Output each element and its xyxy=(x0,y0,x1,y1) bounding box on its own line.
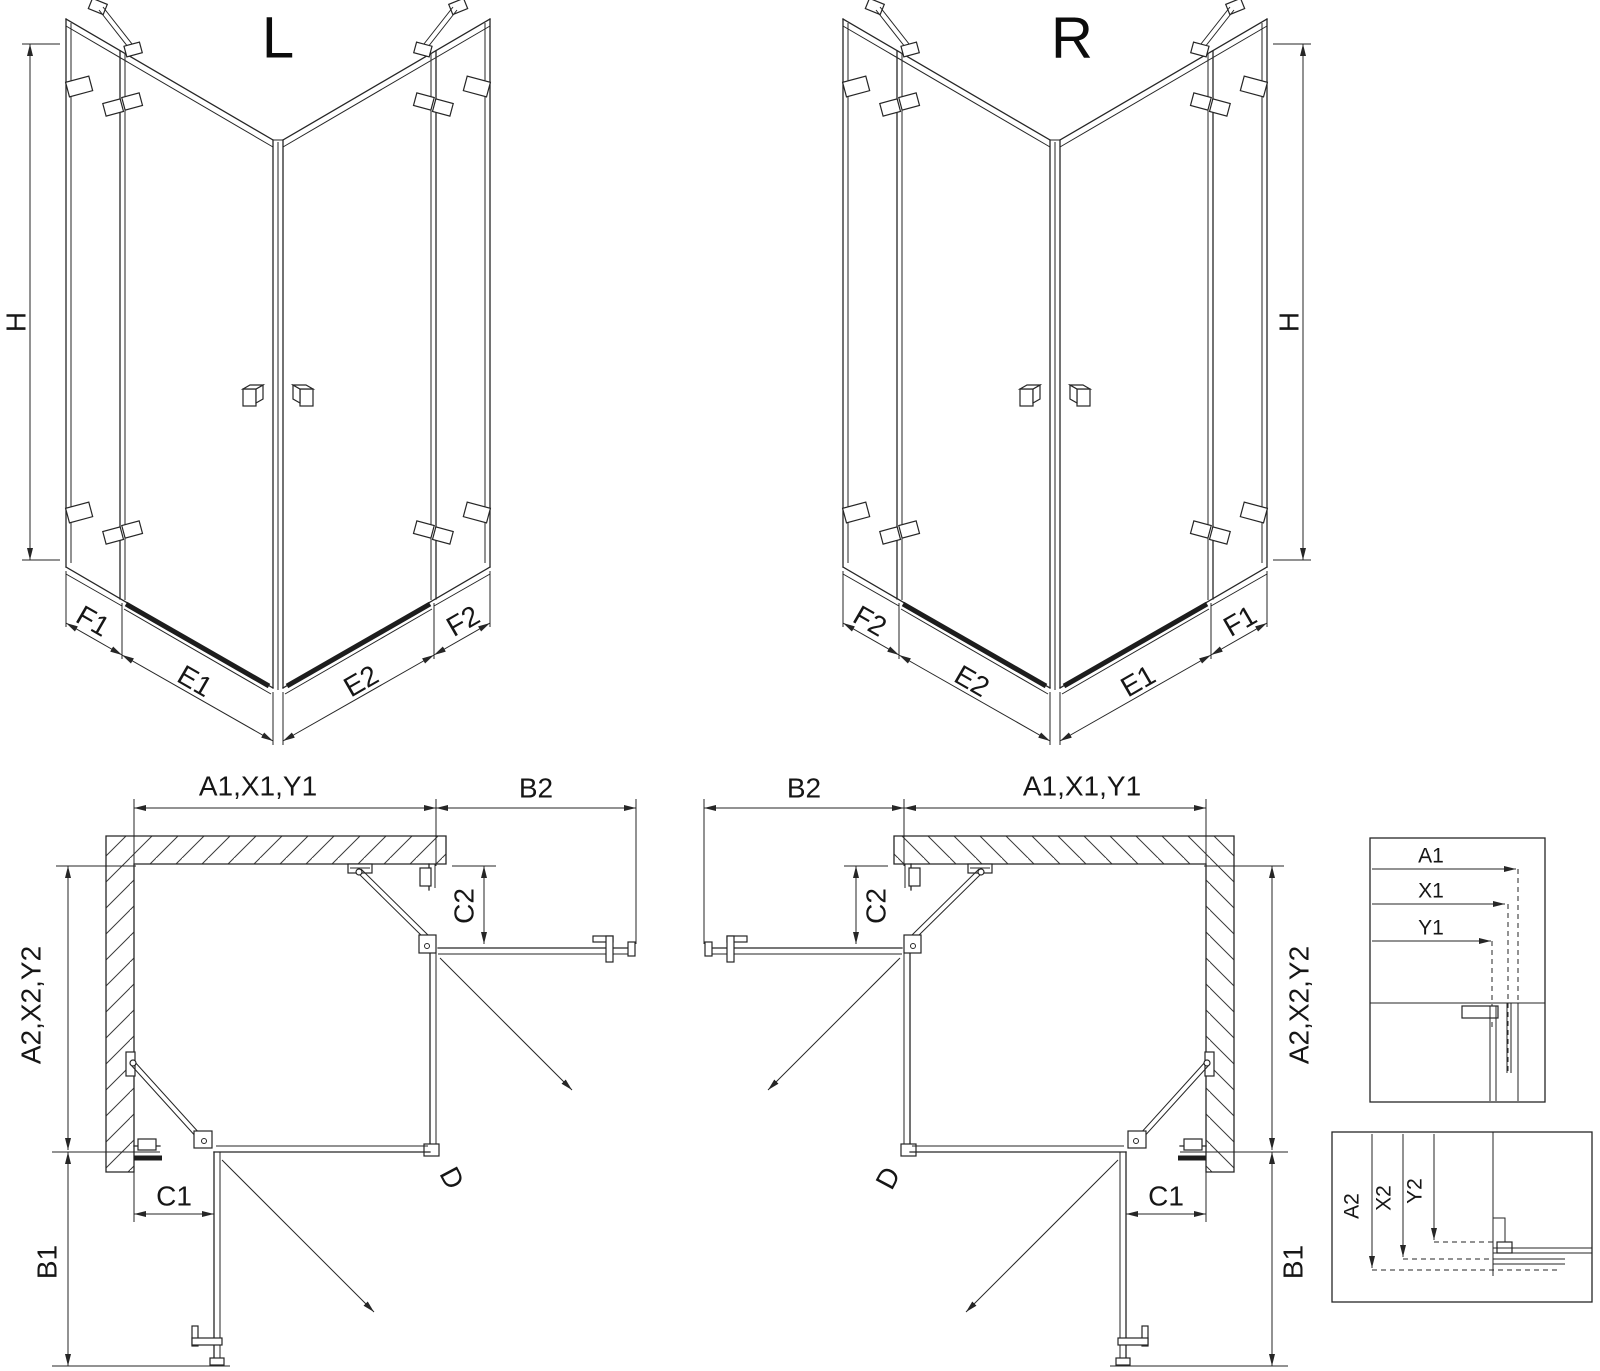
iso-view-right: R H F2 E2 E1 F1 xyxy=(843,0,1311,745)
dimension-label-c1: C1 xyxy=(156,1181,192,1212)
segment-label-e2: E2 xyxy=(338,659,383,703)
plan-view-left-geometry xyxy=(52,799,636,1366)
variant-label-left: L xyxy=(262,6,294,71)
dimension-label-a2x2y2: A2,X2,Y2 xyxy=(1284,946,1315,1064)
detail-label-x2: X2 xyxy=(1373,1185,1396,1211)
dimension-label-a1x1y1: A1,X1,Y1 xyxy=(1023,771,1141,802)
drawing-canvas: L H F1 E1 E2 F2 R H F2 E2 E1 F1 A1,X1,Y1… xyxy=(0,0,1600,1371)
height-dimension-label: H xyxy=(1274,312,1305,332)
detail-label-a1: A1 xyxy=(1418,845,1444,868)
dimension-label-c2: C2 xyxy=(861,888,892,924)
segment-label-f2: F2 xyxy=(441,599,485,642)
plan-view-left: A1,X1,Y1 B2 C2 A2,X2,Y2 C1 B1 D xyxy=(16,771,637,1367)
dimension-label-a1x1y1: A1,X1,Y1 xyxy=(199,771,317,802)
segment-label-f1: F1 xyxy=(71,599,115,642)
dimension-label-b2: B2 xyxy=(787,773,821,804)
detail-label-y1: Y1 xyxy=(1418,917,1444,940)
plan-view-right-geometry xyxy=(704,799,1288,1366)
dimension-label-d: D xyxy=(870,1162,907,1194)
detail-box-depth: A2 X2 Y2 xyxy=(1332,1132,1592,1302)
shower-enclosure-technical-drawing: L H F1 E1 E2 F2 R H F2 E2 E1 F1 A1,X1,Y1… xyxy=(0,0,1600,1371)
dimension-label-a2x2y2: A2,X2,Y2 xyxy=(16,946,47,1064)
dimension-label-b1: B1 xyxy=(1278,1245,1309,1279)
detail-box-width: A1 X1 Y1 xyxy=(1370,838,1545,1102)
segment-label-e1: E1 xyxy=(1115,659,1160,703)
dimension-label-b2: B2 xyxy=(519,773,553,804)
segment-label-e1: E1 xyxy=(172,659,217,703)
dimension-label-c2: C2 xyxy=(449,888,480,924)
height-dimension-label: H xyxy=(1,312,32,332)
detail-label-a2: A2 xyxy=(1341,1193,1364,1219)
detail-label-y2: Y2 xyxy=(1404,1178,1427,1204)
segment-label-f2: F2 xyxy=(848,599,892,642)
iso-view-left: L H F1 E1 E2 F2 xyxy=(1,0,491,745)
segment-label-e2: E2 xyxy=(949,659,994,703)
segment-label-f1: F1 xyxy=(1218,599,1262,642)
dimension-label-c1: C1 xyxy=(1148,1181,1184,1212)
variant-label-right: R xyxy=(1051,6,1093,71)
plan-view-right: B2 A1,X1,Y1 C2 A2,X2,Y2 C1 B1 D xyxy=(704,771,1315,1367)
dimension-label-d: D xyxy=(434,1162,471,1194)
dimension-label-b1: B1 xyxy=(32,1245,63,1279)
detail-label-x1: X1 xyxy=(1418,880,1444,903)
